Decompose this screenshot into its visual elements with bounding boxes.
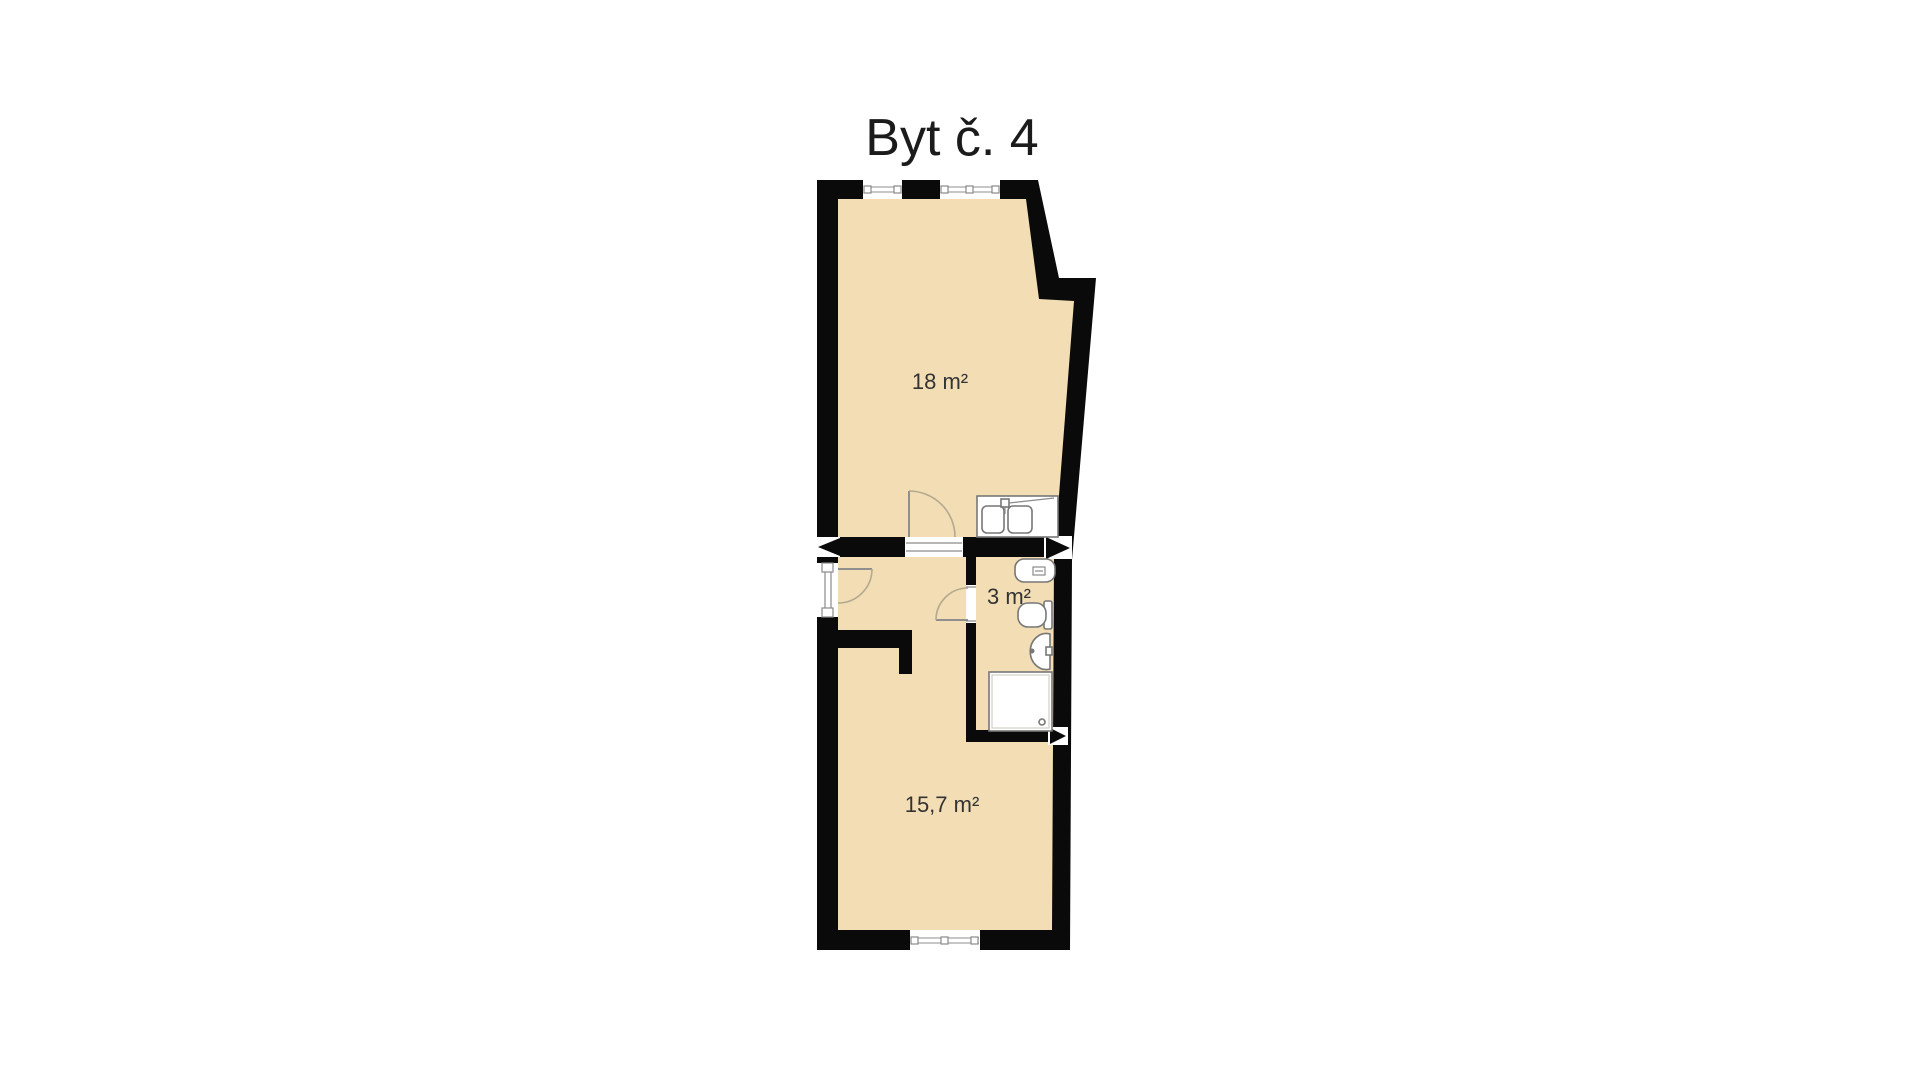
- boiler-icon: [1015, 559, 1055, 582]
- divider-wall-right: [963, 537, 1050, 557]
- floor-plan-page: Byt č. 4: [0, 0, 1920, 1080]
- plan-title: Byt č. 4: [865, 109, 1038, 167]
- entrance-door-icon: [817, 563, 838, 617]
- room-area-label-bottom: 15,7 m²: [905, 792, 980, 817]
- window-top-right-icon: [940, 180, 1000, 199]
- room-doorway: [905, 537, 963, 557]
- bathroom-doorway: [966, 585, 976, 623]
- window-bottom-icon: [910, 930, 980, 950]
- room-area-label-top: 18 m²: [912, 369, 968, 394]
- bathroom-wall-west-lower: [966, 623, 976, 742]
- floor-plan: Byt č. 4: [0, 0, 1920, 1080]
- window-top-left-icon: [863, 180, 902, 199]
- divider-wall-left: [838, 537, 905, 557]
- room-area-label-bathroom: 3 m²: [987, 584, 1031, 609]
- kitchen-sink-icon: [977, 496, 1058, 537]
- wall-stub-horizontal: [838, 630, 912, 648]
- shower-icon: [989, 672, 1052, 731]
- wall-stub-vertical: [899, 648, 912, 674]
- bathroom-wall-west-upper: [966, 557, 976, 585]
